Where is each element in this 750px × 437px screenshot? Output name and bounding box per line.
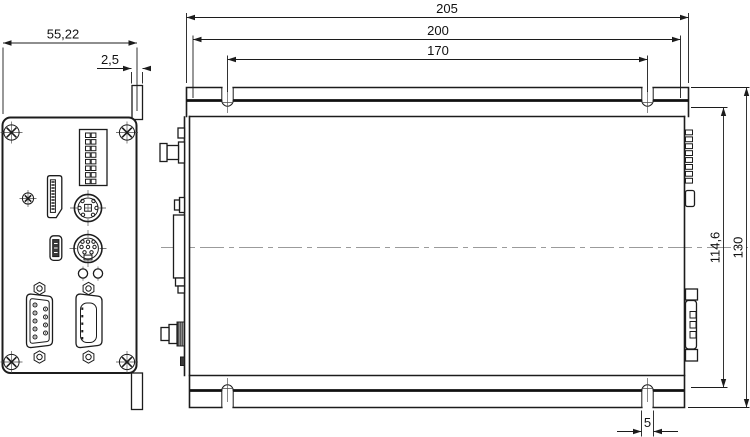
dip-switch-profile [686, 130, 693, 183]
dim-body-height-label: 114,6 [708, 232, 723, 264]
mini-usb-connector [50, 236, 62, 261]
enclosure-body [185, 117, 685, 376]
front-connector-profiles [686, 130, 698, 361]
dim-tab-width: 2,5 [97, 52, 151, 84]
dim-slot-width-label: 5 [644, 415, 651, 430]
top-mounting-flange [187, 88, 689, 117]
dsub-connector-profile-right [686, 289, 698, 361]
dim-panel-width-label: 55,22 [47, 27, 80, 42]
dim-overall-length-label: 205 [436, 1, 458, 16]
coax-connector-profile [160, 142, 185, 163]
mounting-tab-bottom [132, 373, 143, 410]
front-panel-outline [3, 118, 137, 374]
technical-drawing-page: 205 200 170 114,6 130 [0, 0, 750, 437]
displayport-connector [48, 176, 62, 218]
usb-connector-profile [175, 198, 185, 213]
rear-small-part-profile [181, 357, 185, 366]
technical-drawing: 205 200 170 114,6 130 [0, 0, 750, 437]
dim-overall-height-label: 130 [731, 237, 746, 259]
dim-panel-width: 55,22 [3, 27, 137, 115]
displayport-profile [686, 191, 695, 207]
dim-slot-spacing-label: 170 [427, 43, 449, 58]
dim-tab-width-label: 2,5 [101, 52, 119, 67]
rear-connector-profiles [160, 128, 185, 366]
side-view [160, 88, 748, 408]
threaded-antenna-connector-profile [161, 322, 185, 346]
rear-bump-profile [178, 128, 185, 138]
dim-slot-spacing: 170 [228, 43, 648, 92]
dim-overall-length: 205 [187, 1, 689, 83]
dim-slot-width: 5 [617, 411, 678, 437]
bottom-mounting-flange [190, 376, 685, 408]
dsub-connector-profile-left [174, 215, 185, 293]
front-view [1, 86, 143, 410]
dim-flange-length-label: 200 [427, 23, 449, 38]
